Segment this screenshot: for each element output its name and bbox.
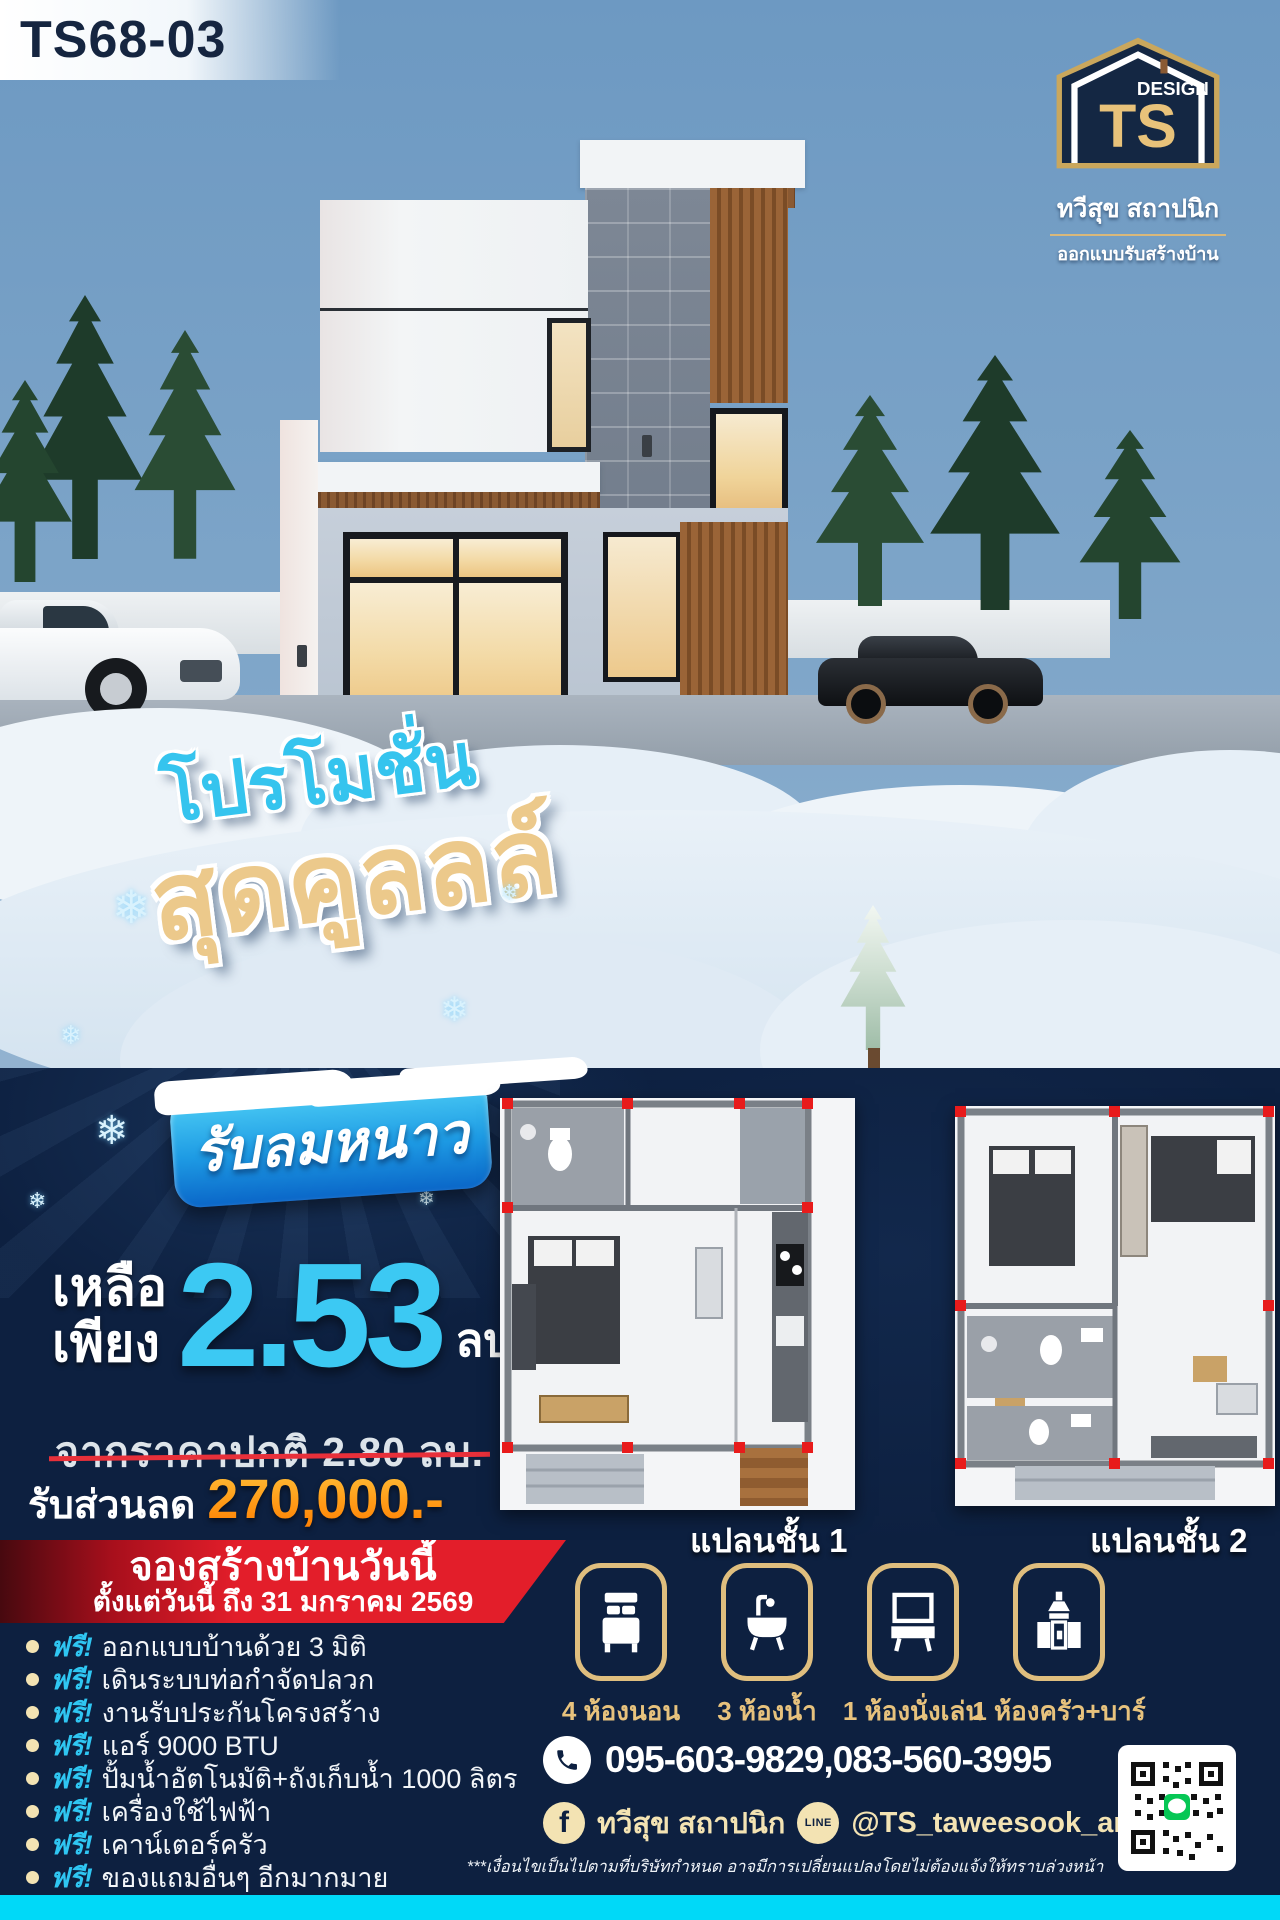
house-roof bbox=[580, 140, 805, 188]
pine-tree bbox=[115, 330, 255, 590]
booking-subtitle: ตั้งแต่วันนี้ ถึง 31 มกราคม 2569 bbox=[93, 1588, 474, 1617]
logo-ts-text: TS bbox=[1099, 92, 1177, 160]
price-block: เหลือ เพียง 2.53 ลบ. bbox=[52, 1246, 525, 1387]
logo-divider bbox=[1050, 234, 1226, 236]
social-contacts: f ทวีสุข สถาปนิก LINE @TS_taweesook_arch bbox=[543, 1800, 1158, 1846]
pine-tree bbox=[905, 355, 1085, 645]
pine-tree bbox=[1060, 430, 1200, 645]
winter-promo-badge: รับลมหนาว bbox=[168, 1075, 493, 1209]
house-awning-wood bbox=[303, 492, 600, 508]
facebook-name[interactable]: ทวีสุข สถาปนิก bbox=[597, 1800, 785, 1846]
bullet-dot bbox=[26, 1838, 39, 1851]
company-logo: DESIGN TS ทวีสุข สถาปนิก ออกแบบรับสร้างบ… bbox=[1038, 28, 1238, 268]
model-code: TS68-03 bbox=[20, 10, 226, 70]
bullet-dot bbox=[26, 1739, 39, 1752]
feature-label: 3 ห้องน้ำ bbox=[717, 1691, 817, 1732]
discount-row: รับส่วนลด 270,000.- bbox=[28, 1466, 444, 1536]
house-wood-slats bbox=[710, 188, 788, 403]
feature-row: 4 ห้องนอน 3 ห้องน้ำ bbox=[560, 1563, 1120, 1732]
bed-icon bbox=[575, 1563, 667, 1681]
feature-label: 4 ห้องนอน bbox=[562, 1691, 680, 1732]
price-value: 2.53 bbox=[177, 1246, 441, 1387]
phone-icon bbox=[543, 1736, 591, 1784]
feature-label: 1 ห้องนั่งเล่น bbox=[843, 1691, 983, 1732]
freebie-text: ของแถมอื่นๆ อีกมากมาย bbox=[102, 1856, 389, 1899]
price-label-line1: เหลือ bbox=[52, 1260, 167, 1316]
line-icon[interactable]: LINE bbox=[797, 1802, 839, 1844]
snowflake-icon: ❄ bbox=[28, 1188, 46, 1214]
kitchen-icon bbox=[1013, 1563, 1105, 1681]
bullet-dot bbox=[26, 1706, 39, 1719]
price-label-line2: เพียง bbox=[52, 1316, 167, 1372]
wall-lamp bbox=[297, 645, 307, 667]
snowy-pine-tree bbox=[828, 905, 918, 1070]
freebies-list: ฟรี!ออกแบบบ้านด้วย 3 มิติ ฟรี!เดินระบบท่… bbox=[26, 1630, 496, 1894]
house-awning bbox=[295, 462, 600, 492]
terms-disclaimer: ***เงื่อนไขเป็นไปตามที่บริษัทกำหนด อาจมี… bbox=[455, 1854, 1115, 1880]
price-labels: เหลือ เพียง bbox=[52, 1260, 167, 1372]
line-handle[interactable]: @TS_taweesook_arch bbox=[851, 1807, 1158, 1840]
company-tagline: ออกแบบรับสร้างบ้าน bbox=[1038, 239, 1238, 268]
bullet-dot bbox=[26, 1805, 39, 1818]
wall-lamp bbox=[642, 435, 652, 457]
snowflake-icon: ❄ bbox=[500, 880, 518, 906]
plan-1-label: แปลนชั้น 1 bbox=[690, 1514, 847, 1567]
bottom-accent-bar bbox=[0, 1895, 1280, 1920]
living-room-icon bbox=[867, 1563, 959, 1681]
house-window bbox=[547, 318, 591, 452]
freebie-item: ฟรี!ของแถมอื่นๆ อีกมากมาย bbox=[26, 1861, 496, 1894]
phone-contact[interactable]: 095-603-9829,083-560-3995 bbox=[543, 1736, 1051, 1784]
bath-icon bbox=[721, 1563, 813, 1681]
discount-value: 270,000.- bbox=[207, 1466, 444, 1531]
snowflake-icon: ❄ bbox=[112, 880, 151, 934]
snowflake-icon: ❄ bbox=[440, 990, 469, 1030]
snowflake-icon: ❄ bbox=[95, 1108, 129, 1154]
house-render bbox=[285, 90, 805, 722]
feature-bathrooms: 3 ห้องน้ำ bbox=[706, 1563, 828, 1732]
line-qr-code[interactable] bbox=[1118, 1745, 1236, 1871]
promo-poster: TS68-03 DESIGN TS ทวีสุข สถาปนิก ออกแบบร… bbox=[0, 0, 1280, 1920]
bullet-dot bbox=[26, 1772, 39, 1785]
floor-plan-1 bbox=[500, 1098, 855, 1510]
house-pillar bbox=[280, 420, 318, 720]
pine-tree bbox=[0, 380, 90, 610]
feature-bedrooms: 4 ห้องนอน bbox=[560, 1563, 682, 1732]
feature-living-room: 1 ห้องนั่งเล่น bbox=[852, 1563, 974, 1732]
plan-2-label: แปลนชั้น 2 bbox=[1090, 1514, 1247, 1567]
bullet-dot bbox=[26, 1871, 39, 1884]
company-name: ทวีสุข สถาปนิก bbox=[1038, 189, 1238, 229]
bullet-dot bbox=[26, 1673, 39, 1686]
house-window bbox=[603, 532, 681, 682]
floor-plan-2 bbox=[955, 1106, 1275, 1506]
free-label: ฟรี! bbox=[50, 1856, 93, 1899]
discount-label: รับส่วนลด bbox=[28, 1474, 195, 1536]
feature-kitchen: 1 ห้องครัว+บาร์ bbox=[998, 1563, 1120, 1732]
model-code-badge: TS68-03 bbox=[0, 0, 340, 80]
offer-panel: ❄ ❄ ❄ ❄ รับลมหนาว เหลือ เพียง 2.53 ลบ. จ… bbox=[0, 1068, 1280, 1920]
ts-design-logo-icon: DESIGN TS bbox=[1053, 28, 1223, 178]
booking-title: จองสร้างบ้านวันนี้ bbox=[129, 1547, 436, 1588]
house-facade-line bbox=[320, 308, 588, 311]
snowflake-icon: ❄ bbox=[60, 1020, 82, 1051]
phone-number[interactable]: 095-603-9829,083-560-3995 bbox=[605, 1739, 1051, 1781]
bullet-dot bbox=[26, 1640, 39, 1653]
facebook-icon[interactable]: f bbox=[543, 1802, 585, 1844]
booking-banner: จองสร้างบ้านวันนี้ ตั้งแต่วันนี้ ถึง 31 … bbox=[0, 1540, 566, 1623]
feature-label: 1 ห้องครัว+บาร์ bbox=[972, 1691, 1145, 1732]
